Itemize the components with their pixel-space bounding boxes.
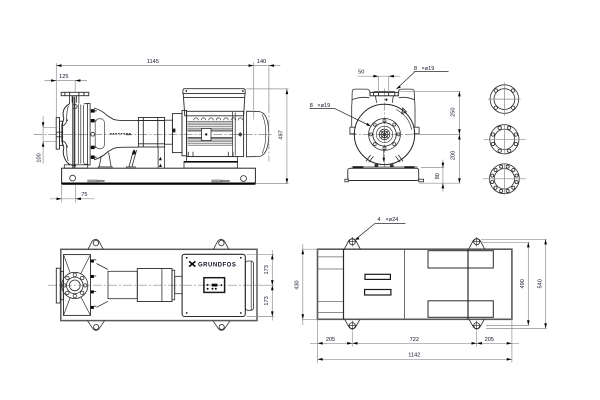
svg-text:205: 205 xyxy=(485,337,494,343)
svg-text:430: 430 xyxy=(294,280,300,289)
svg-text:140: 140 xyxy=(257,59,266,65)
svg-text:205: 205 xyxy=(326,337,335,343)
svg-text:1145: 1145 xyxy=(147,59,159,65)
svg-text:490: 490 xyxy=(520,279,526,288)
svg-text:×ø24: ×ø24 xyxy=(385,217,398,223)
svg-text:GRUNDFOS: GRUNDFOS xyxy=(198,262,236,268)
svg-text:250: 250 xyxy=(451,108,457,117)
svg-text:80: 80 xyxy=(435,173,441,179)
svg-text:75: 75 xyxy=(81,192,87,198)
svg-text:173: 173 xyxy=(264,296,270,305)
svg-text:1142: 1142 xyxy=(408,353,420,359)
svg-text:50: 50 xyxy=(358,69,364,75)
svg-text:173: 173 xyxy=(264,265,270,274)
svg-text:4: 4 xyxy=(377,217,380,223)
svg-text:100: 100 xyxy=(36,153,42,162)
svg-text:497: 497 xyxy=(279,130,285,139)
svg-text:722: 722 xyxy=(410,337,419,343)
svg-text:125: 125 xyxy=(59,74,68,80)
svg-text:540: 540 xyxy=(538,279,544,288)
svg-text:200: 200 xyxy=(451,151,457,160)
